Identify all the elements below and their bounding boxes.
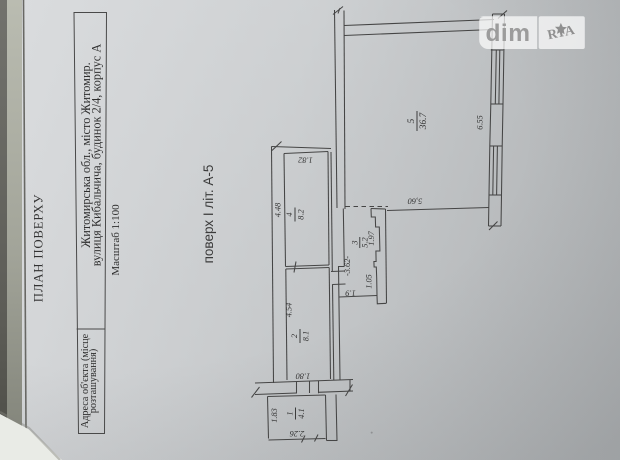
svg-text:5: 5 bbox=[407, 118, 417, 123]
svg-text:4: 4 bbox=[285, 212, 294, 216]
svg-text:2.26: 2.26 bbox=[289, 429, 304, 438]
svg-text:1.83: 1.83 bbox=[270, 408, 279, 423]
svg-text:Масштаб 1:100: Масштаб 1:100 bbox=[110, 204, 122, 276]
svg-text:розташування): розташування) bbox=[88, 349, 99, 413]
svg-text:1.9: 1.9 bbox=[344, 289, 355, 298]
svg-text:1.80: 1.80 bbox=[295, 372, 310, 381]
svg-text:dim: dim bbox=[485, 20, 530, 47]
svg-text:1.97: 1.97 bbox=[367, 230, 376, 245]
svg-text:поверх І літ. А-5: поверх І літ. А-5 bbox=[201, 165, 216, 264]
svg-text:1.05: 1.05 bbox=[365, 274, 374, 289]
svg-text:4.48: 4.48 bbox=[274, 202, 283, 217]
svg-text:4.54: 4.54 bbox=[285, 303, 294, 318]
svg-text:5,60: 5,60 bbox=[407, 197, 422, 206]
svg-text:6.55: 6.55 bbox=[476, 115, 485, 130]
svg-text:1.82: 1.82 bbox=[298, 156, 313, 165]
svg-text:4.1: 4.1 bbox=[297, 408, 306, 418]
svg-text:-3.62-: -3.62- bbox=[343, 256, 352, 276]
svg-text:1: 1 bbox=[286, 411, 295, 415]
svg-text:3: 3 bbox=[350, 240, 359, 245]
svg-text:ПЛАН ПОВЕРХУ: ПЛАН ПОВЕРХУ bbox=[32, 194, 46, 303]
svg-text:2: 2 bbox=[290, 334, 299, 338]
svg-text:8.2: 8.2 bbox=[297, 209, 306, 219]
svg-text:вулиця Кибальчича, будинок 2/4: вулиця Кибальчича, будинок 2/4, корпус А bbox=[89, 44, 103, 267]
svg-text:8.1: 8.1 bbox=[302, 331, 311, 341]
svg-text:36.7: 36.7 bbox=[419, 111, 429, 130]
